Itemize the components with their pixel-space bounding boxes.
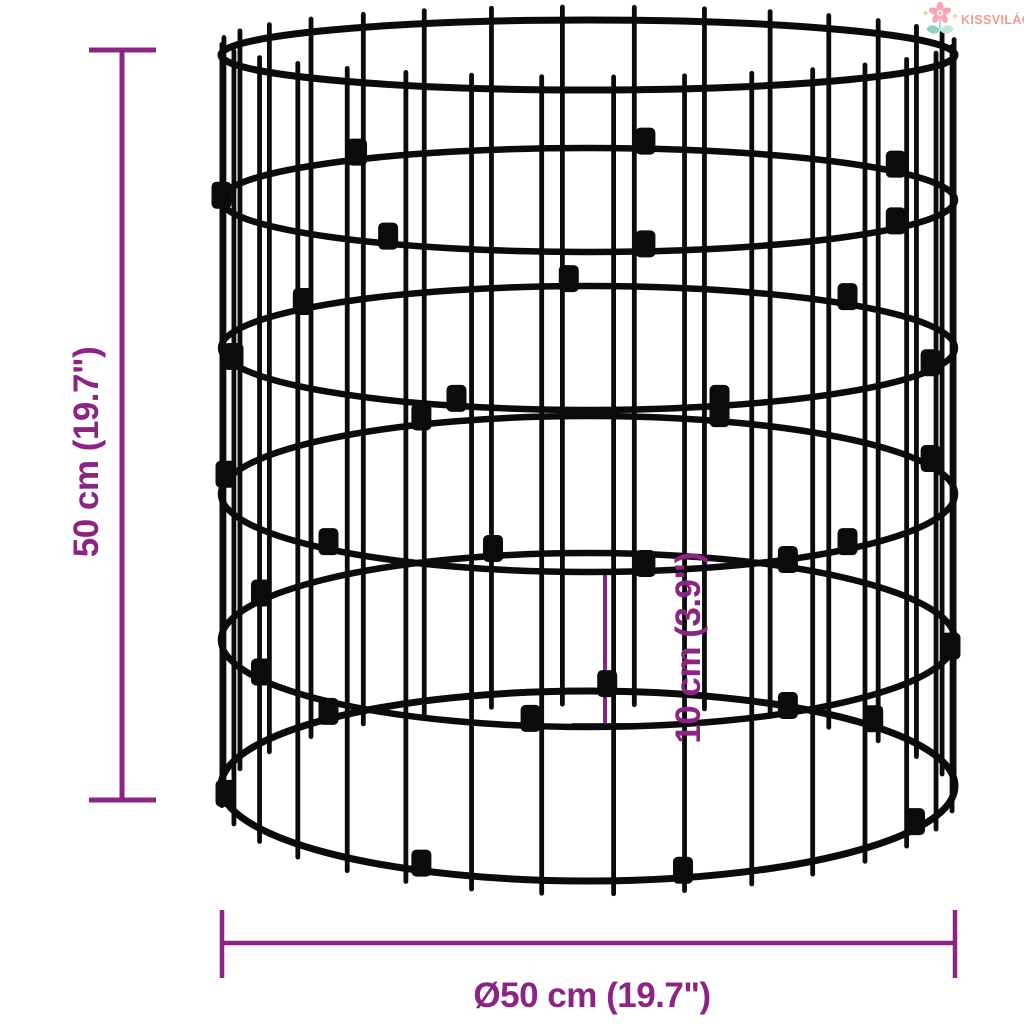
- wire-clamp: [940, 633, 960, 660]
- wire-clamp: [710, 400, 730, 427]
- diameter-dimension-label: Ø50 cm (19.7"): [473, 976, 710, 1016]
- wire-clamp: [347, 139, 367, 166]
- wire-clamp: [318, 528, 338, 555]
- brand-logo: KISSVILÁG: [922, 2, 1024, 38]
- wire-clamp: [216, 461, 236, 488]
- wire-clamp: [635, 550, 655, 577]
- wire-clamp: [483, 535, 503, 562]
- product-dimension-diagram: KISSVILÁG 50 cm (19.7") 10 cm (3.9") Ø50…: [0, 0, 1024, 1024]
- rings: [221, 20, 955, 881]
- wire-clamp: [559, 265, 579, 292]
- wire-clamps: [212, 128, 961, 884]
- wire-clamp: [838, 283, 858, 310]
- wire-clamp: [293, 288, 313, 315]
- flower-logo-icon: [922, 2, 958, 38]
- wire-clamp: [446, 385, 466, 412]
- wire-clamp: [778, 546, 798, 573]
- wire-clamp: [224, 343, 244, 370]
- wire-clamp: [597, 670, 617, 697]
- flower-dot-icon: [939, 12, 941, 14]
- wire-clamp: [863, 705, 883, 732]
- wire-clamp: [905, 808, 925, 835]
- gabion-wireframe-svg: [0, 0, 1024, 1024]
- wire-clamp: [921, 445, 941, 472]
- wire-clamp: [521, 705, 541, 732]
- sparkle-icon: [952, 13, 958, 19]
- height-dimension-label: 50 cm (19.7"): [67, 347, 107, 558]
- wire-clamp: [635, 230, 655, 257]
- wire-clamp: [411, 850, 431, 877]
- wire-clamp: [778, 692, 798, 719]
- wire-clamp: [378, 223, 398, 250]
- sparkle-icon: [922, 10, 928, 16]
- wire-clamp: [251, 580, 271, 607]
- vertical-wires: [222, 7, 954, 894]
- wire-clamp: [251, 658, 271, 685]
- leaf-icon: [940, 25, 954, 33]
- ring-wire: [221, 20, 955, 90]
- wire-clamp: [838, 528, 858, 555]
- wire-clamp: [921, 349, 941, 376]
- wire-clamp: [886, 151, 906, 178]
- ring-wire: [221, 148, 955, 252]
- wire-clamp: [216, 780, 236, 807]
- brand-name: KISSVILÁG: [961, 13, 1024, 27]
- mesh-dimension-label: 10 cm (3.9"): [669, 552, 709, 744]
- page: { "logo": { "text": "KISSVILÁG", "color"…: [0, 0, 1024, 1024]
- wire-clamp: [212, 182, 232, 209]
- wire-clamp: [886, 207, 906, 234]
- wire-clamp: [411, 404, 431, 431]
- wire-clamp: [673, 857, 693, 884]
- leaf-icon: [927, 25, 941, 33]
- wire-clamp: [635, 128, 655, 155]
- wire-clamp: [318, 698, 338, 725]
